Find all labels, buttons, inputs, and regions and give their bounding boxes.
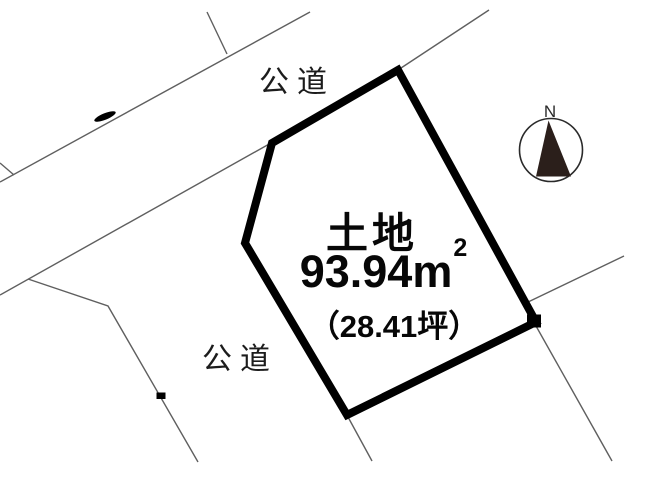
- parcel-boundary-line: [398, 10, 489, 70]
- north-label: N: [544, 102, 556, 121]
- ink-mark: [93, 109, 117, 124]
- parcel-boundary-line: [348, 417, 372, 461]
- parcel-boundary-line: [207, 12, 227, 54]
- land-plot-diagram: N 公道 公道 土地 93.94m2 （28.41坪）: [0, 0, 648, 483]
- plot-area-label: 93.94m2: [300, 249, 467, 294]
- area-superscript: 2: [453, 234, 467, 262]
- compass: N: [520, 102, 583, 182]
- area-value: 93.94: [300, 246, 413, 297]
- road-label-top: 公道: [259, 57, 335, 101]
- compass-needle-icon: [536, 121, 571, 177]
- plot-area-tsubo: （28.41坪）: [309, 301, 480, 346]
- parcel-boundary-line: [526, 256, 624, 303]
- road-label-left: 公道: [202, 334, 278, 378]
- parcel-boundary-line: [536, 326, 612, 461]
- parcel-boundary-line: [0, 163, 14, 175]
- ink-mark: [527, 315, 541, 328]
- parcel-boundary-line: [0, 143, 271, 295]
- ink-mark: [157, 393, 166, 400]
- parcel-boundary-line: [28, 279, 198, 462]
- area-unit: m: [412, 246, 452, 297]
